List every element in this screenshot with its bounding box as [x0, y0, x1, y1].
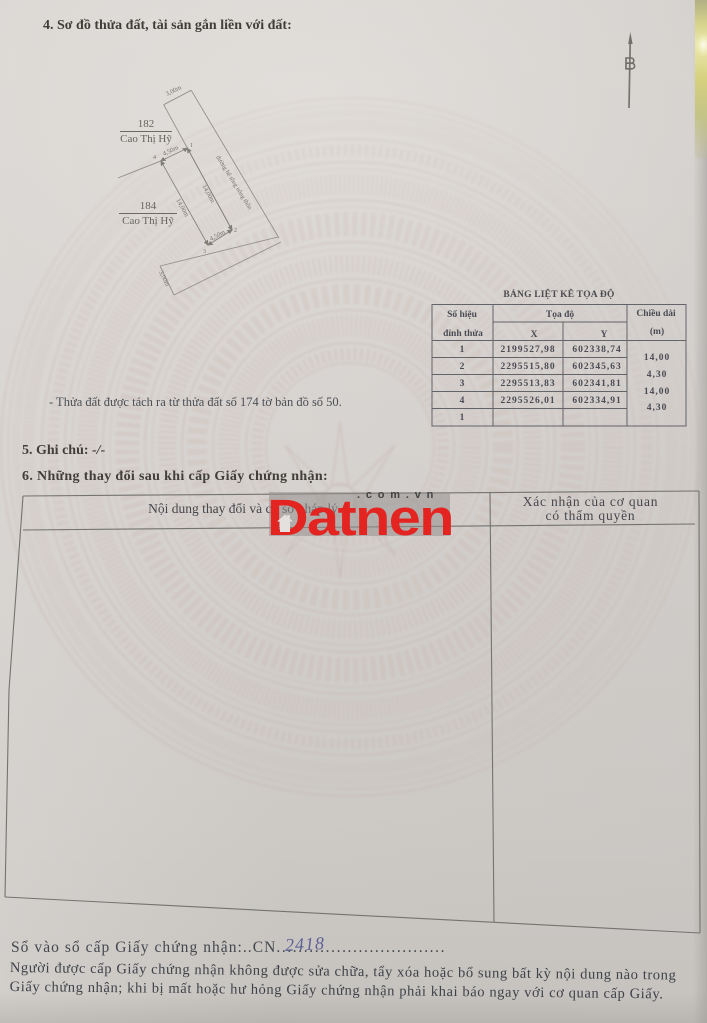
- svg-text:2: 2: [234, 228, 237, 234]
- svg-text:2199527,98: 2199527,98: [500, 345, 555, 355]
- svg-text:14,00: 14,00: [644, 387, 670, 397]
- svg-text:Số hiệu: Số hiệu: [447, 309, 478, 320]
- svg-text:1: 1: [460, 345, 465, 355]
- svg-text:602345,63: 602345,63: [572, 362, 621, 372]
- svg-text:Y: Y: [601, 330, 608, 340]
- svg-text:4: 4: [460, 396, 465, 406]
- svg-text:602334,91: 602334,91: [572, 396, 621, 406]
- svg-text:4,30: 4,30: [647, 403, 668, 413]
- svg-text:2295515,80: 2295515,80: [500, 362, 555, 372]
- svg-text:Chiều dài: Chiều dài: [636, 308, 676, 319]
- svg-text:X: X: [531, 330, 538, 340]
- svg-text:3: 3: [203, 249, 206, 255]
- svg-text:2295526,01: 2295526,01: [500, 396, 555, 406]
- svg-text:4: 4: [153, 155, 156, 161]
- svg-text:đỉnh thửa: đỉnh thửa: [443, 329, 483, 339]
- svg-text:3: 3: [460, 379, 465, 389]
- svg-text:14,00: 14,00: [644, 353, 670, 363]
- svg-text:14,00m: 14,00m: [200, 184, 216, 205]
- svg-text:1: 1: [190, 143, 193, 149]
- svg-text:1: 1: [460, 413, 465, 423]
- svg-text:602338,74: 602338,74: [572, 345, 621, 355]
- svg-text:602341,81: 602341,81: [572, 379, 621, 389]
- svg-text:4,50m: 4,50m: [209, 229, 227, 243]
- svg-text:Tọa độ: Tọa độ: [546, 310, 574, 320]
- svg-text:2: 2: [460, 362, 465, 372]
- svg-text:đường bê tông nông thôn: đường bê tông nông thôn: [214, 154, 253, 211]
- svg-text:3,00m: 3,00m: [157, 270, 170, 288]
- svg-text:2295513,83: 2295513,83: [500, 379, 555, 389]
- svg-text:(m): (m): [650, 326, 664, 337]
- svg-text:4,30: 4,30: [647, 370, 668, 380]
